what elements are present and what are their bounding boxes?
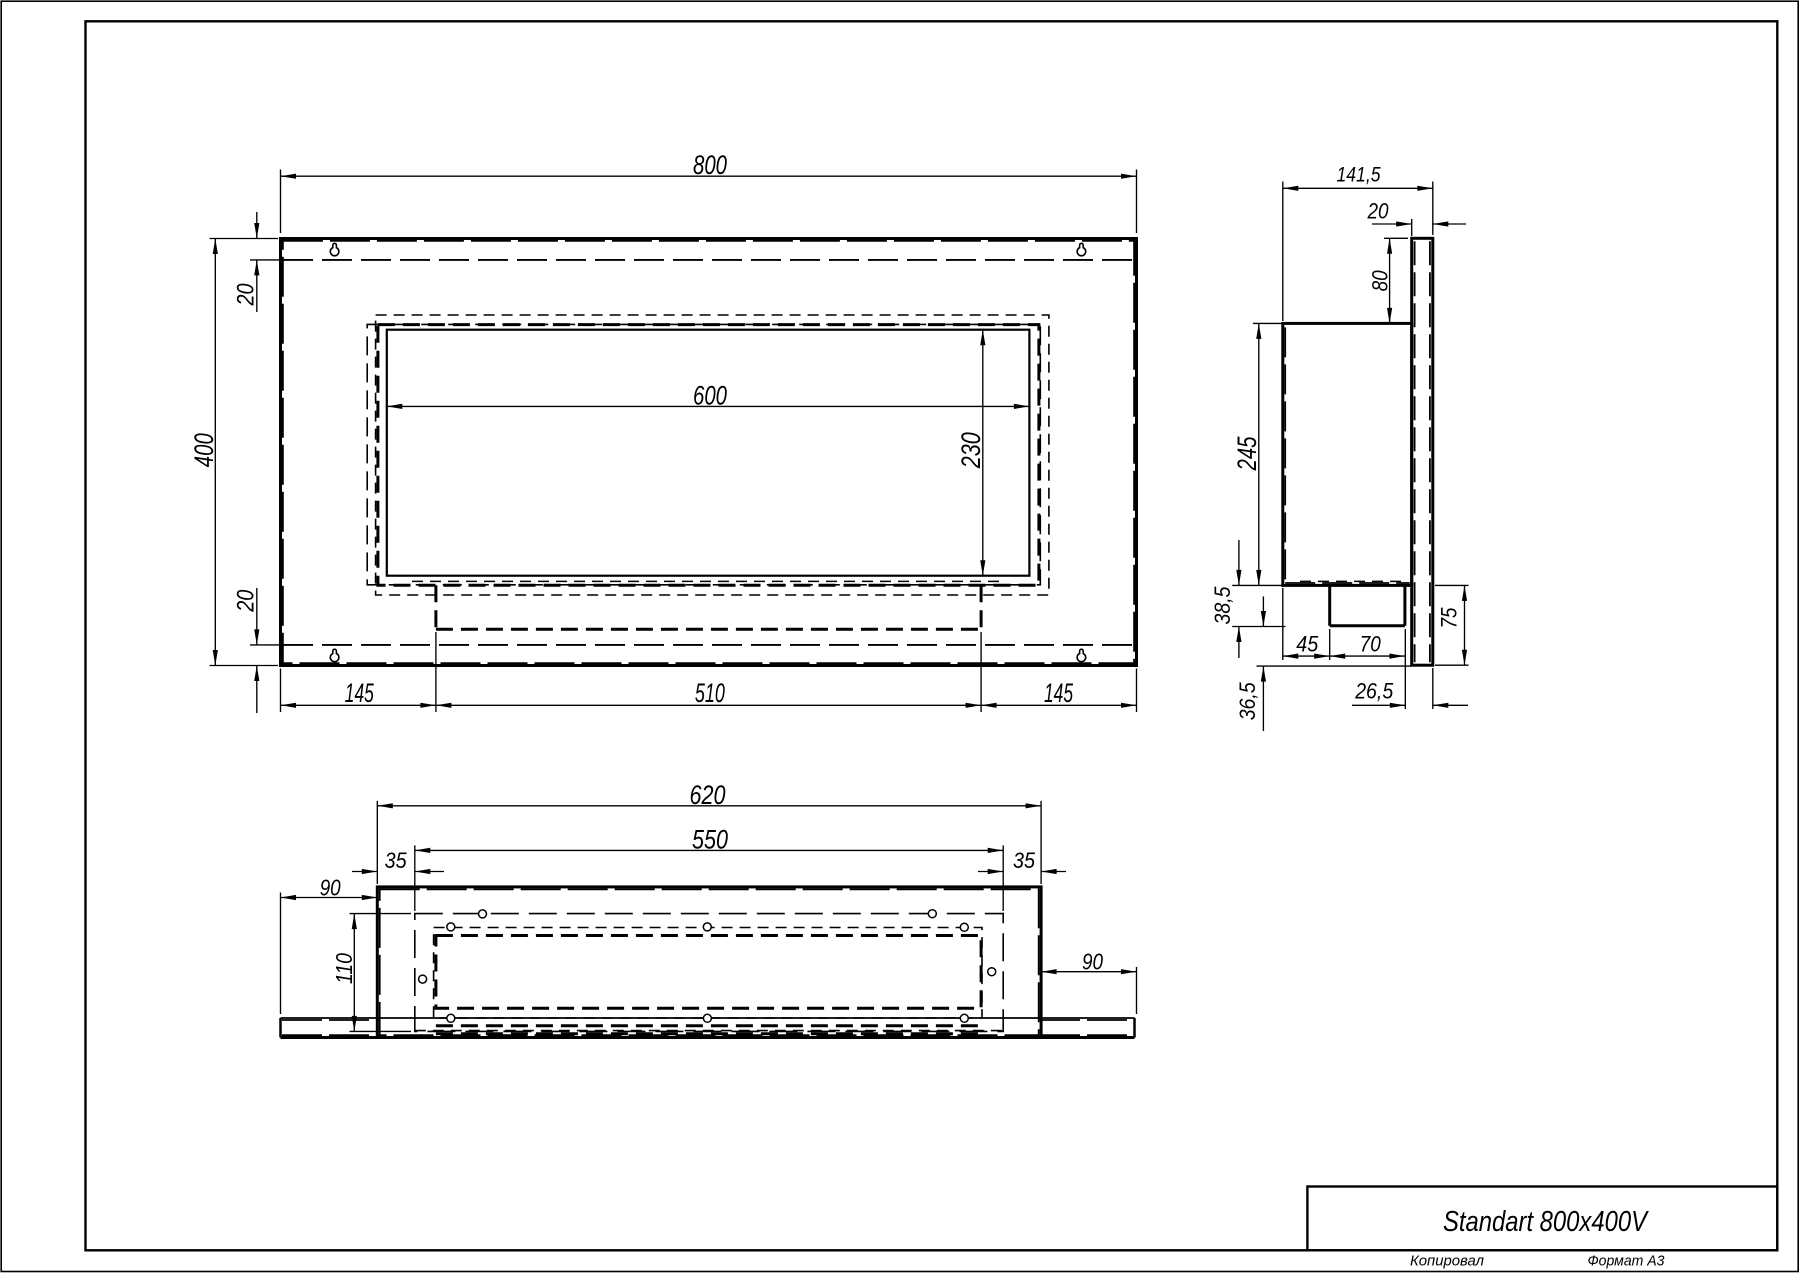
svg-text:38,5: 38,5 — [1210, 586, 1235, 625]
svg-text:Standart 800x400V: Standart 800x400V — [1443, 1206, 1649, 1238]
svg-text:510: 510 — [695, 678, 725, 708]
svg-text:800: 800 — [693, 150, 727, 180]
svg-text:145: 145 — [1044, 678, 1074, 708]
svg-text:80: 80 — [1367, 270, 1392, 292]
svg-text:145: 145 — [345, 678, 375, 708]
svg-text:70: 70 — [1360, 632, 1382, 657]
svg-text:45: 45 — [1296, 632, 1319, 657]
svg-text:600: 600 — [693, 381, 727, 411]
svg-text:20: 20 — [233, 589, 260, 612]
svg-text:90: 90 — [320, 874, 341, 900]
svg-text:90: 90 — [1082, 949, 1103, 975]
svg-text:36,5: 36,5 — [1235, 682, 1260, 721]
svg-text:20: 20 — [1367, 198, 1390, 223]
svg-text:141,5: 141,5 — [1337, 163, 1381, 186]
svg-text:Формат А3: Формат А3 — [1588, 1253, 1666, 1270]
svg-text:400: 400 — [189, 433, 219, 467]
svg-text:550: 550 — [692, 824, 728, 854]
svg-text:110: 110 — [331, 953, 357, 984]
svg-text:35: 35 — [385, 848, 408, 873]
svg-text:230: 230 — [956, 432, 986, 469]
svg-text:20: 20 — [233, 283, 260, 306]
svg-text:35: 35 — [1013, 848, 1036, 873]
svg-text:245: 245 — [1232, 436, 1262, 471]
svg-text:Копировал: Копировал — [1410, 1253, 1485, 1270]
svg-text:620: 620 — [690, 780, 726, 810]
svg-text:75: 75 — [1437, 607, 1462, 629]
svg-text:26,5: 26,5 — [1354, 678, 1394, 703]
